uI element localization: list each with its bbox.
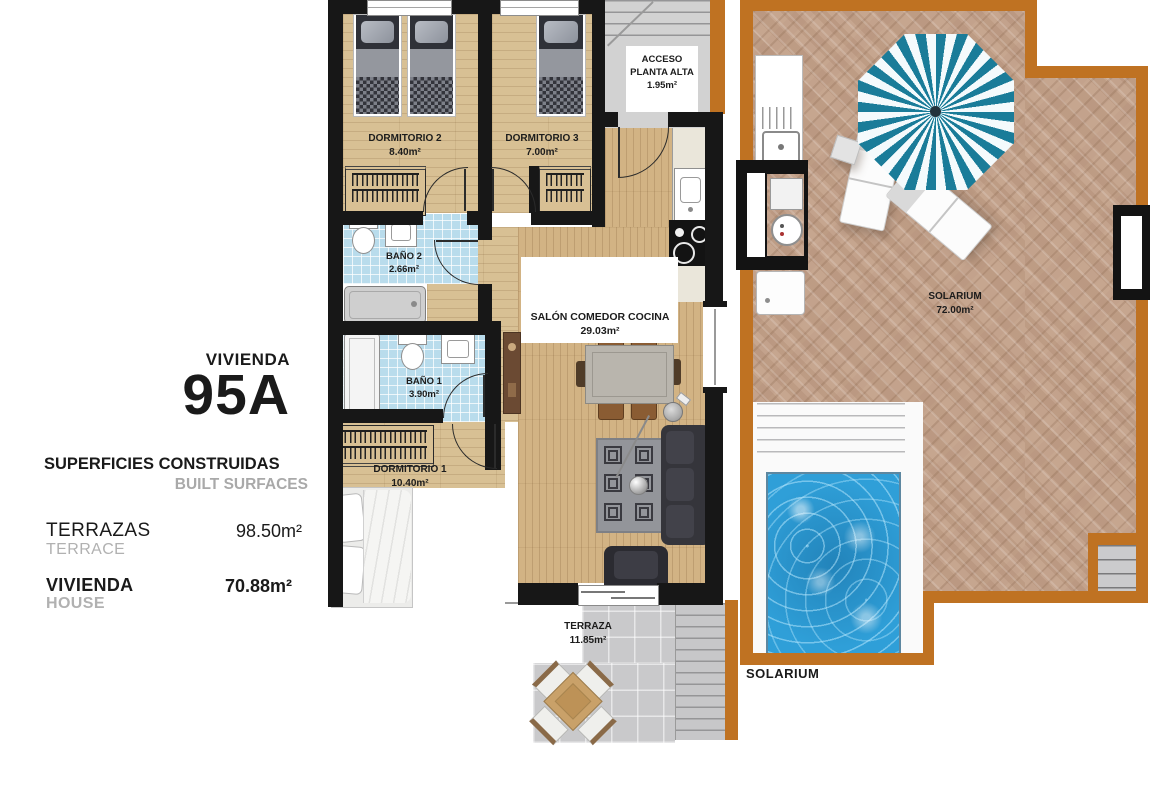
table-inner bbox=[592, 352, 667, 397]
room-area: 7.00m² bbox=[482, 146, 602, 160]
solarium-wall-top bbox=[740, 0, 1037, 11]
label-terraza: TERRAZA 11.85m² bbox=[518, 620, 658, 648]
shower-inner bbox=[349, 338, 375, 414]
solarium-wall-right bbox=[1136, 66, 1148, 603]
wall-dorm-divider bbox=[478, 14, 492, 214]
solarium-window-east bbox=[1113, 205, 1150, 300]
slider-line bbox=[581, 591, 625, 593]
bed-dorm1 bbox=[331, 487, 413, 608]
room-name: BAÑO 1 bbox=[374, 375, 474, 388]
wardrobe-dorm1 bbox=[333, 425, 434, 467]
hanger-row bbox=[546, 189, 584, 202]
wall-dorm3-right bbox=[592, 0, 605, 227]
outdoor-sink-counter bbox=[755, 55, 803, 167]
parasol-hub bbox=[930, 106, 941, 117]
room-area: 72.00m² bbox=[895, 304, 1015, 318]
slider-line bbox=[611, 597, 655, 599]
hanger-row bbox=[340, 446, 427, 459]
tub-drain bbox=[411, 301, 417, 307]
terraza-stairs bbox=[675, 603, 726, 740]
faucet bbox=[688, 207, 693, 212]
bed-dorm2-a bbox=[353, 14, 402, 117]
door-leaf bbox=[436, 240, 478, 242]
sink-basin bbox=[447, 340, 469, 358]
table-inner bbox=[555, 683, 592, 720]
room-area: 29.03m² bbox=[510, 324, 690, 338]
room-area: 2.66m² bbox=[354, 263, 454, 276]
label-acceso: ACCESO PLANTA ALTA 1.95m² bbox=[620, 53, 704, 92]
terraza-exterior-wall bbox=[725, 600, 738, 740]
sofa bbox=[661, 425, 711, 545]
sink-drain bbox=[778, 144, 784, 150]
duvet bbox=[363, 490, 411, 603]
decor-ball bbox=[629, 476, 648, 495]
drainer bbox=[762, 107, 796, 129]
door-leaf bbox=[494, 424, 496, 468]
window-dorm2 bbox=[367, 0, 452, 16]
rug-motif bbox=[635, 446, 653, 464]
door-leaf bbox=[464, 169, 466, 211]
pillow bbox=[415, 21, 448, 43]
wall-under-bano1 bbox=[328, 409, 443, 423]
window-glass bbox=[1121, 216, 1142, 289]
room-area: 3.90m² bbox=[374, 388, 474, 401]
sheet bbox=[410, 49, 453, 77]
terrace-label-en: TERRACE bbox=[46, 541, 206, 559]
hanger-row bbox=[352, 173, 419, 186]
lounger-fold-line bbox=[849, 177, 892, 188]
floor-lamp-head bbox=[663, 402, 683, 422]
wall-under-dorm3 bbox=[531, 211, 605, 225]
room-area: 11.85m² bbox=[518, 634, 658, 648]
unit-number: 95A bbox=[60, 364, 290, 426]
solarium-wall-left bbox=[740, 0, 753, 665]
door-leaf bbox=[492, 169, 494, 211]
bbq-machine bbox=[770, 178, 803, 210]
kitchen-sink bbox=[674, 168, 707, 222]
sink-basin bbox=[391, 224, 411, 241]
sheet bbox=[356, 49, 399, 77]
room-name: BAÑO 2 bbox=[354, 250, 454, 263]
console-decor bbox=[508, 383, 516, 397]
room-name: SALÓN COMEDOR COCINA bbox=[510, 310, 690, 324]
rug-motif bbox=[604, 474, 622, 492]
console-decor bbox=[508, 343, 516, 351]
window-salon-east bbox=[703, 301, 727, 393]
window-glass-line bbox=[714, 309, 716, 385]
room-area: 10.40m² bbox=[350, 477, 470, 491]
acceso-exterior-wall bbox=[710, 0, 725, 114]
room-name: DORMITORIO 1 bbox=[350, 463, 470, 477]
wardrobe-dorm3 bbox=[539, 166, 591, 216]
label-bano2: BAÑO 2 2.66m² bbox=[354, 250, 454, 276]
acceso-line1: ACCESO bbox=[620, 53, 704, 66]
room-name: TERRAZA bbox=[518, 620, 658, 634]
window-cap-top bbox=[703, 301, 727, 307]
vivienda-value: 70.88m² bbox=[180, 576, 292, 597]
surfaces-title: SUPERFICIES CONSTRUIDAS bbox=[44, 455, 308, 474]
wall-under-dorm2 bbox=[343, 211, 423, 225]
sheet bbox=[539, 49, 583, 77]
floorplan-canvas: VIVIENDA 95A SUPERFICIES CONSTRUIDAS BUI… bbox=[0, 0, 1170, 785]
lounger-fold-line bbox=[929, 197, 958, 232]
pillow bbox=[361, 21, 394, 43]
door-glass bbox=[747, 173, 765, 257]
label-solarium: SOLARIUM 72.00m² bbox=[895, 290, 1015, 318]
wardrobe-dorm2 bbox=[345, 166, 426, 216]
terrazas-value: 98.50m² bbox=[180, 521, 302, 542]
sofa-cushion bbox=[666, 468, 694, 501]
window-glass-line bbox=[501, 7, 578, 8]
room-name: SOLARIUM bbox=[895, 290, 1015, 304]
dining-table bbox=[585, 345, 674, 404]
door-leaf bbox=[618, 127, 620, 177]
window-glass-line bbox=[368, 7, 451, 8]
cooktop-dial bbox=[675, 228, 684, 237]
armchair-seat bbox=[614, 551, 658, 579]
surfaces-title-en: BUILT SURFACES bbox=[44, 476, 308, 494]
rug-motif bbox=[604, 446, 622, 464]
label-bano1: BAÑO 1 3.90m² bbox=[374, 375, 474, 401]
info-panel: VIVIENDA 95A SUPERFICIES CONSTRUIDAS BUI… bbox=[40, 348, 310, 628]
label-dormitorio1: DORMITORIO 1 10.40m² bbox=[350, 463, 470, 491]
pool bbox=[766, 472, 901, 656]
hall-console bbox=[503, 332, 521, 414]
acceso-line2: PLANTA ALTA bbox=[620, 66, 704, 79]
wall-salon-bottom-right bbox=[657, 583, 723, 605]
burner-dot bbox=[780, 224, 784, 228]
room-name: DORMITORIO 2 bbox=[345, 132, 465, 146]
outdoor-fridge bbox=[756, 271, 805, 315]
pool-deck-steps bbox=[757, 403, 905, 463]
wall-bano2-right bbox=[478, 214, 492, 240]
label-dormitorio2: DORMITORIO 2 8.40m² bbox=[345, 132, 465, 160]
stairs-wall-left bbox=[1088, 533, 1098, 603]
solarium-paving-right bbox=[1025, 78, 1136, 591]
pillow bbox=[544, 21, 578, 43]
label-dormitorio3: DORMITORIO 3 7.00m² bbox=[482, 132, 602, 160]
fridge-handle bbox=[765, 298, 770, 303]
hanger-row bbox=[340, 430, 427, 443]
blanket bbox=[356, 77, 399, 114]
wall-entry-left bbox=[605, 112, 618, 127]
hanger-row bbox=[352, 189, 419, 202]
wall-bano1-top bbox=[328, 321, 491, 335]
burner-dot bbox=[780, 232, 784, 236]
blanket bbox=[539, 77, 583, 114]
acceso-area-value: 1.95m² bbox=[620, 79, 704, 92]
solarium-door-frame bbox=[736, 160, 808, 270]
bed-dorm2-b bbox=[407, 14, 456, 117]
room-name: DORMITORIO 3 bbox=[482, 132, 602, 146]
acceso-stairs bbox=[605, 0, 710, 46]
window-cap-bottom bbox=[703, 387, 727, 393]
solarium-caption: SOLARIUM bbox=[746, 666, 866, 681]
bathtub-bano2 bbox=[344, 286, 426, 324]
door-leaf bbox=[483, 375, 485, 417]
bbq-burner bbox=[771, 214, 803, 246]
toilet-bowl-bano1 bbox=[401, 343, 424, 370]
bbq-nook bbox=[767, 174, 804, 256]
wall-left bbox=[328, 0, 343, 607]
rug-motif bbox=[635, 503, 653, 521]
balcony-sliding-door bbox=[578, 585, 659, 606]
sink-bano1 bbox=[441, 334, 475, 364]
wall-salon-bottom-left bbox=[518, 583, 578, 605]
sofa-cushion bbox=[666, 505, 694, 538]
bed-dorm3 bbox=[536, 14, 586, 117]
solarium-wall-bottom-right bbox=[923, 591, 1148, 603]
house-label-en: HOUSE bbox=[46, 595, 206, 613]
rug-motif bbox=[604, 503, 622, 521]
sofa-cushion bbox=[666, 431, 694, 464]
solarium-wall-bottom-left bbox=[740, 653, 934, 665]
window-dorm3 bbox=[500, 0, 579, 16]
room-area: 8.40m² bbox=[345, 146, 465, 160]
label-salon: SALÓN COMEDOR COCINA 29.03m² bbox=[510, 310, 690, 338]
solarium-wall-notch-h bbox=[1025, 66, 1148, 78]
hanger-row bbox=[546, 173, 584, 186]
sink-basin bbox=[680, 177, 701, 203]
blanket bbox=[410, 77, 453, 114]
